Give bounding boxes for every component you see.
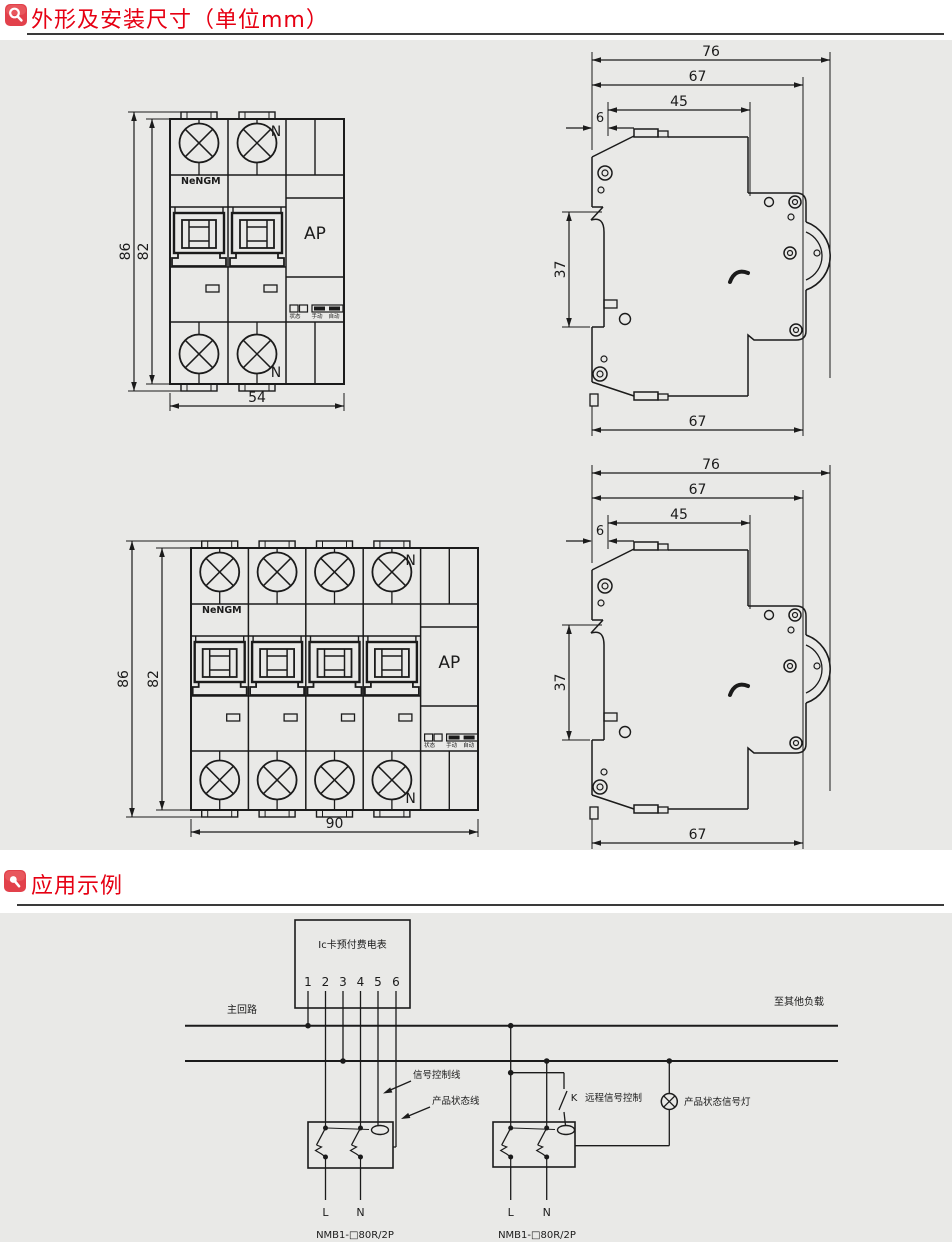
terminal-block: [634, 805, 658, 813]
dimension-arrow: [741, 520, 750, 526]
terminal-step: [658, 544, 668, 550]
marker-icon: [4, 870, 26, 892]
dimension-arrow: [794, 495, 803, 501]
drawing-line: [406, 1107, 430, 1117]
wiring-diagram: Ic卡预付费电表123456主回路至其他负载LNNMB1-□80R/2P信号控制…: [0, 913, 952, 1242]
handle-arc-inner: [806, 232, 822, 280]
screw: [597, 371, 603, 377]
junction-dot: [340, 1058, 346, 1064]
screw: [593, 780, 607, 794]
dimension-arrow: [566, 731, 572, 740]
dimension-label: 67: [689, 69, 707, 85]
page-title: 外形及安装尺寸（单位mm）: [31, 2, 329, 34]
dimension-arrow: [191, 829, 200, 835]
vent-slot: [264, 285, 277, 292]
bottom-clip: [374, 810, 410, 817]
ap-module-label: AP: [304, 224, 326, 244]
dimension-arrow: [592, 840, 601, 846]
dimension-arrow: [566, 318, 572, 327]
breaker-model-label: NMB1-□80R/2P: [498, 1230, 576, 1241]
indicator-label: 自动: [328, 312, 340, 320]
dimension-arrow: [794, 82, 803, 88]
handle-inner: [182, 220, 216, 248]
screw: [789, 609, 801, 621]
front-view-4p: NNNeNGMAP状态手动自动868290: [116, 541, 478, 837]
screw: [601, 769, 607, 775]
handle-pivot: [788, 664, 793, 669]
section-header-dimensions: 外形及安装尺寸（单位mm）: [0, 0, 952, 40]
phase-label: L: [322, 1206, 329, 1219]
neutral-label: N: [543, 1206, 551, 1219]
screw: [602, 583, 608, 589]
dimension-label: 76: [702, 457, 720, 473]
side-view-top: 76674563767: [553, 44, 830, 436]
vent-slot: [227, 714, 240, 721]
top-clip: [239, 112, 275, 119]
top-slant: [592, 549, 634, 570]
vent-slot: [399, 714, 412, 721]
dimension-arrow: [566, 212, 572, 221]
indicator-label: 手动: [446, 741, 458, 749]
status-led: [300, 305, 308, 312]
dimension-label: 37: [553, 674, 569, 692]
dimension-arrow: [131, 382, 137, 391]
dimension-arrow: [335, 403, 344, 409]
breaker-body: [170, 119, 344, 384]
dimension-arrow: [159, 548, 165, 557]
terminal-number: 5: [374, 975, 382, 989]
phase-label: L: [508, 1206, 515, 1219]
header-divider: [27, 33, 944, 35]
din-claw: [591, 632, 604, 645]
status-led: [290, 305, 298, 312]
screw: [598, 166, 612, 180]
magnifier-icon: [5, 4, 27, 26]
signal-control-line-label: 信号控制线: [413, 1069, 461, 1081]
screw: [794, 328, 799, 333]
screw: [814, 250, 820, 256]
dimension-arrow: [170, 403, 179, 409]
dimension-label: 54: [248, 390, 266, 406]
neutral-pole-label: N: [271, 124, 281, 140]
dimension-arrow: [608, 107, 617, 113]
neutral-label: N: [356, 1206, 364, 1219]
screw: [598, 600, 604, 606]
dimension-label: 86: [116, 670, 132, 688]
screw: [814, 663, 820, 669]
screw: [788, 214, 794, 220]
to-other-loads-label: 至其他负载: [774, 995, 824, 1008]
dimension-arrow: [159, 801, 165, 810]
dimension-arrow: [129, 541, 135, 550]
bottom-clip: [259, 810, 295, 817]
application-panel: Ic卡预付费电表123456主回路至其他负载LNNMB1-□80R/2P信号控制…: [0, 913, 952, 1242]
switch-blade: [502, 1128, 511, 1145]
screw: [598, 187, 604, 193]
brand-logo: NeNGM: [181, 176, 221, 187]
handle-inner: [260, 649, 294, 677]
switch-k-label: K: [571, 1093, 578, 1104]
dimension-arrow: [821, 57, 830, 63]
screw: [794, 741, 799, 746]
status-led: [434, 734, 442, 741]
dimension-arrow: [592, 495, 601, 501]
vent-slot: [284, 714, 297, 721]
dimension-arrow: [794, 427, 803, 433]
top-clip: [259, 541, 295, 548]
dimension-label: 67: [689, 827, 707, 843]
switch-blade: [352, 1128, 361, 1145]
switch-blade: [538, 1128, 547, 1145]
screw: [602, 170, 608, 176]
header-divider: [17, 904, 944, 906]
dimension-label: 82: [146, 670, 162, 688]
dimension-arrow: [608, 520, 617, 526]
din-claw: [591, 219, 604, 232]
handle-pivot: [784, 247, 796, 259]
dimension-label: 82: [136, 243, 152, 261]
drawing-line: [564, 1112, 566, 1126]
section-header-application: 应用示例: [0, 850, 952, 913]
handle-base: [308, 682, 362, 695]
dimension-arrow: [794, 840, 803, 846]
dimension-arrow: [400, 1113, 410, 1122]
junction-dot: [305, 1023, 311, 1029]
junction-dot: [508, 1023, 514, 1029]
dimension-label: 90: [326, 816, 344, 832]
handle-base: [193, 682, 247, 695]
terminal-number: 1: [304, 975, 312, 989]
vent-slot: [342, 714, 355, 721]
meter-outline: [295, 920, 410, 1008]
top-clip: [202, 541, 238, 548]
dimension-label: 6: [596, 524, 604, 539]
dimension-label: 67: [689, 482, 707, 498]
terminal-step: [658, 807, 668, 813]
dimension-arrow: [382, 1087, 392, 1096]
indicator-label: 自动: [463, 741, 475, 749]
bottom-clip: [181, 384, 217, 391]
screw: [765, 198, 774, 207]
dimension-label: 86: [118, 243, 134, 261]
slider-mark: [314, 307, 325, 311]
dimension-arrow: [583, 125, 592, 131]
slider-mark: [464, 736, 475, 740]
breaker-model-label: NMB1-□80R/2P: [316, 1230, 394, 1241]
front-plate-bottom: [748, 290, 806, 396]
dimension-arrow: [129, 808, 135, 817]
dimensions-panel: NNNeNGMAP状态手动自动868254NNNeNGMAP状态手动自动8682…: [0, 40, 952, 850]
handle-pivot: [784, 660, 796, 672]
screw: [601, 356, 607, 362]
screw: [793, 200, 798, 205]
signal-terminal: [372, 1126, 389, 1135]
screw: [789, 196, 801, 208]
dimension-arrow: [592, 57, 601, 63]
dimension-label: 37: [553, 261, 569, 279]
drawing-line: [388, 1081, 411, 1091]
hole: [620, 314, 631, 325]
dimension-arrow: [741, 107, 750, 113]
neutral-pole-label: N: [405, 553, 415, 569]
status-led: [425, 734, 433, 741]
terminal-step: [658, 394, 668, 400]
terminal-block: [634, 129, 658, 137]
switch-blade: [559, 1091, 567, 1110]
screw: [598, 579, 612, 593]
application-circuit: Ic卡预付费电表123456主回路至其他负载LNNMB1-□80R/2P信号控制…: [185, 920, 838, 1241]
product-status-lamp-label: 产品状态信号灯: [684, 1096, 751, 1108]
side-view-bottom: 76674563767: [553, 457, 830, 849]
top-clip: [317, 541, 353, 548]
screw: [765, 611, 774, 620]
slider-mark: [329, 307, 340, 311]
terminal-number: 6: [392, 975, 400, 989]
front-plate-bottom: [748, 703, 806, 809]
meter-label: Ic卡预付费电表: [318, 938, 386, 951]
handle-pivot: [788, 251, 793, 256]
application-title: 应用示例: [31, 868, 123, 900]
dimension-arrow: [821, 470, 830, 476]
release-clip: [590, 807, 598, 819]
dimension-arrow: [149, 375, 155, 384]
handle-base: [250, 682, 304, 695]
top-clip: [374, 541, 410, 548]
dimension-label: 76: [702, 44, 720, 60]
dimension-label: 45: [670, 507, 688, 523]
dimension-label: 45: [670, 94, 688, 110]
dimension-arrow: [131, 112, 137, 121]
breaker-symbol-left: LNNMB1-□80R/2P: [308, 1122, 394, 1241]
dimension-arrow: [592, 427, 601, 433]
dimension-arrow: [583, 538, 592, 544]
handle-inner: [318, 649, 352, 677]
handle-inner: [375, 649, 409, 677]
hole: [620, 727, 631, 738]
dimension-label: 6: [596, 111, 604, 126]
dimension-arrow: [592, 82, 601, 88]
handle-base: [230, 253, 284, 266]
ap-module-label: AP: [438, 653, 460, 673]
indicator-label: 手动: [311, 312, 323, 320]
terminal-block: [634, 392, 658, 400]
neutral-pole-label: N: [405, 791, 415, 807]
top-slant: [592, 136, 634, 157]
screw: [597, 784, 603, 790]
handle-inner: [240, 220, 274, 248]
din-claw: [591, 620, 603, 633]
neutral-pole-label: N: [271, 365, 281, 381]
signal-terminal: [558, 1126, 575, 1135]
dimension-arrow: [608, 125, 617, 131]
front-view-2p: NNNeNGMAP状态手动自动868254: [118, 112, 344, 411]
breaker-body: [191, 548, 478, 810]
main-circuit-label: 主回路: [227, 1003, 257, 1016]
slider-mark: [449, 736, 460, 740]
handle-inner: [203, 649, 237, 677]
meter-box: Ic卡预付费电表123456: [295, 920, 410, 1008]
terminal-block: [634, 542, 658, 550]
handle-base: [365, 682, 419, 695]
screw: [793, 613, 798, 618]
dimension-arrow: [469, 829, 478, 835]
screw: [790, 737, 802, 749]
din-tab: [604, 713, 617, 721]
junction-dot: [544, 1058, 550, 1064]
terminal-number: 3: [339, 975, 347, 989]
terminal-step: [658, 131, 668, 137]
din-claw: [591, 207, 603, 220]
dimension-arrow: [608, 538, 617, 544]
breaker-symbol-right: LNNMB1-□80R/2P: [493, 1023, 576, 1241]
dimension-drawings: NNNeNGMAP状态手动自动868254NNNeNGMAP状态手动自动8682…: [0, 40, 952, 850]
dimension-arrow: [149, 119, 155, 128]
main-bus-lines: [185, 1026, 838, 1061]
release-clip: [590, 394, 598, 406]
handle-arc-inner: [806, 645, 822, 693]
screw: [593, 367, 607, 381]
screw: [788, 627, 794, 633]
indicator-label: 状态: [289, 312, 301, 320]
dimension-arrow: [592, 470, 601, 476]
remote-switch: K远程信号控制: [508, 1070, 642, 1126]
mold-mark: [730, 685, 748, 695]
mold-mark: [730, 272, 748, 282]
brand-logo: NeNGM: [202, 605, 242, 616]
din-tab: [604, 300, 617, 308]
remote-signal-control-label: 远程信号控制: [585, 1092, 642, 1104]
dimension-label: 67: [689, 414, 707, 430]
switch-blade: [317, 1128, 326, 1145]
terminal-number: 4: [357, 975, 365, 989]
handle-base: [172, 253, 226, 266]
datasheet-page: { "page": { "background": "#ffffff", "pa…: [0, 0, 952, 1242]
terminal-number: 2: [322, 975, 330, 989]
product-status-line-label: 产品状态线: [432, 1095, 480, 1107]
vent-slot: [206, 285, 219, 292]
top-clip: [181, 112, 217, 119]
bottom-clip: [202, 810, 238, 817]
dimension-arrow: [566, 625, 572, 634]
screw: [790, 324, 802, 336]
indicator-label: 状态: [424, 741, 436, 749]
